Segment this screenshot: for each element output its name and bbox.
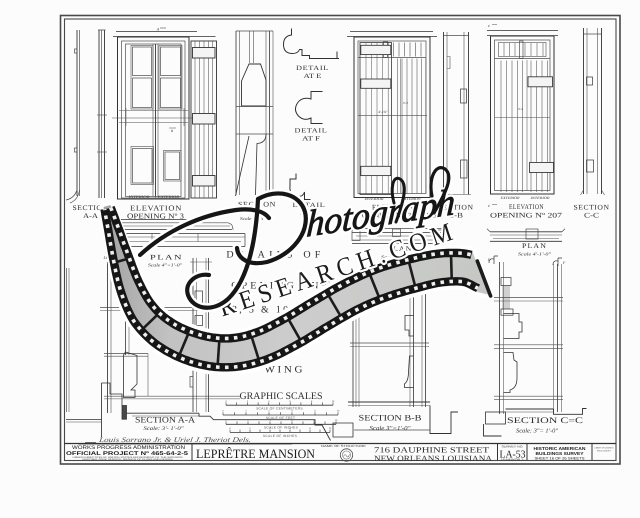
svg-text:9'-2: 9'-2 xyxy=(403,101,408,105)
svg-text:AT F: AT F xyxy=(302,136,321,143)
svg-text:Scale 4"=1'-0": Scale 4"=1'-0" xyxy=(148,263,182,268)
svg-text:Louis Sorrano Jr. & Uriel J. T: Louis Sorrano Jr. & Uriel J. Theriot Del… xyxy=(97,436,252,444)
svg-text:SECTION: SECTION xyxy=(574,204,610,212)
svg-text:BUILDINGS SURVEY: BUILDINGS SURVEY xyxy=(536,451,584,456)
svg-text:WORKS PROGRESS ADMINISTRATIO: WORKS PROGRESS ADMINISTRATION xyxy=(72,445,185,451)
svg-text:Scale 4'-1'-0": Scale 4'-1'-0" xyxy=(518,252,551,257)
svg-text:SHEET 16 OF 26 SHEETS: SHEET 16 OF 26 SHEETS xyxy=(535,457,586,461)
svg-text:PLAN: PLAN xyxy=(150,254,183,262)
svg-text:Scale: 3'- 1'-0": Scale: 3'- 1'-0" xyxy=(144,426,185,432)
svg-text:SURVEY NO.: SURVEY NO. xyxy=(502,444,524,448)
svg-text:OPENING Nº 207: OPENING Nº 207 xyxy=(490,212,563,220)
svg-text:4'-1¾": 4'-1¾" xyxy=(378,110,388,114)
svg-text:A-A: A-A xyxy=(83,212,98,220)
svg-text:LEPRÊTRE MANSION: LEPRÊTRE MANSION xyxy=(196,447,315,461)
svg-text:EXTERIOR: EXTERIOR xyxy=(499,196,520,200)
svg-text:16-NEWOR.1-: 16-NEWOR.1- xyxy=(501,458,525,462)
svg-text:NEW ORLEANS LOUISIANA: NEW ORLEANS LOUISIANA xyxy=(374,454,492,463)
svg-text:9'-2: 9'-2 xyxy=(518,107,523,111)
svg-text:SCALE OF CENTIMETERS: SCALE OF CENTIMETERS xyxy=(256,406,303,410)
svg-text:SECTION C=C: SECTION C=C xyxy=(507,415,583,425)
svg-text:AT E: AT E xyxy=(304,73,322,80)
svg-text:INTERIOR: INTERIOR xyxy=(529,196,550,200)
svg-text:PLAN: PLAN xyxy=(522,242,547,250)
svg-text:INTERIOR: INTERIOR xyxy=(127,195,150,199)
svg-text:SECTION B-B: SECTION B-B xyxy=(359,413,422,423)
svg-text:DETAIL: DETAIL xyxy=(296,65,329,72)
svg-text:NATIONAL PARK SERVICE, BRANCH: NATIONAL PARK SERVICE, BRANCH OF PLANS A… xyxy=(83,458,174,461)
svg-text:A: A xyxy=(156,27,160,32)
svg-text:LIBRARY OF CONGRESS: LIBRARY OF CONGRESS xyxy=(595,447,615,450)
svg-text:Scale: 3"= 1'-0": Scale: 3"= 1'-0" xyxy=(516,428,558,435)
svg-text:ELEVATION: ELEVATION xyxy=(509,203,544,211)
svg-text:c: c xyxy=(488,23,490,28)
svg-text:DETAIL: DETAIL xyxy=(295,128,328,135)
svg-text:FIELD SURVEY: FIELD SURVEY xyxy=(597,450,612,453)
svg-text:NAME OF STRUCTURE: NAME OF STRUCTURE xyxy=(321,444,366,448)
svg-text:SECTION A-A: SECTION A-A xyxy=(135,415,196,425)
svg-text:Scale 3"=1'-0": Scale 3"=1'-0" xyxy=(370,425,412,432)
svg-text:c: c xyxy=(488,203,490,208)
svg-text:EXTERIOR: EXTERIOR xyxy=(157,195,180,199)
svg-text:C-C: C-C xyxy=(584,212,599,220)
svg-text:SCALE OF INCHES: SCALE OF INCHES xyxy=(263,434,298,438)
